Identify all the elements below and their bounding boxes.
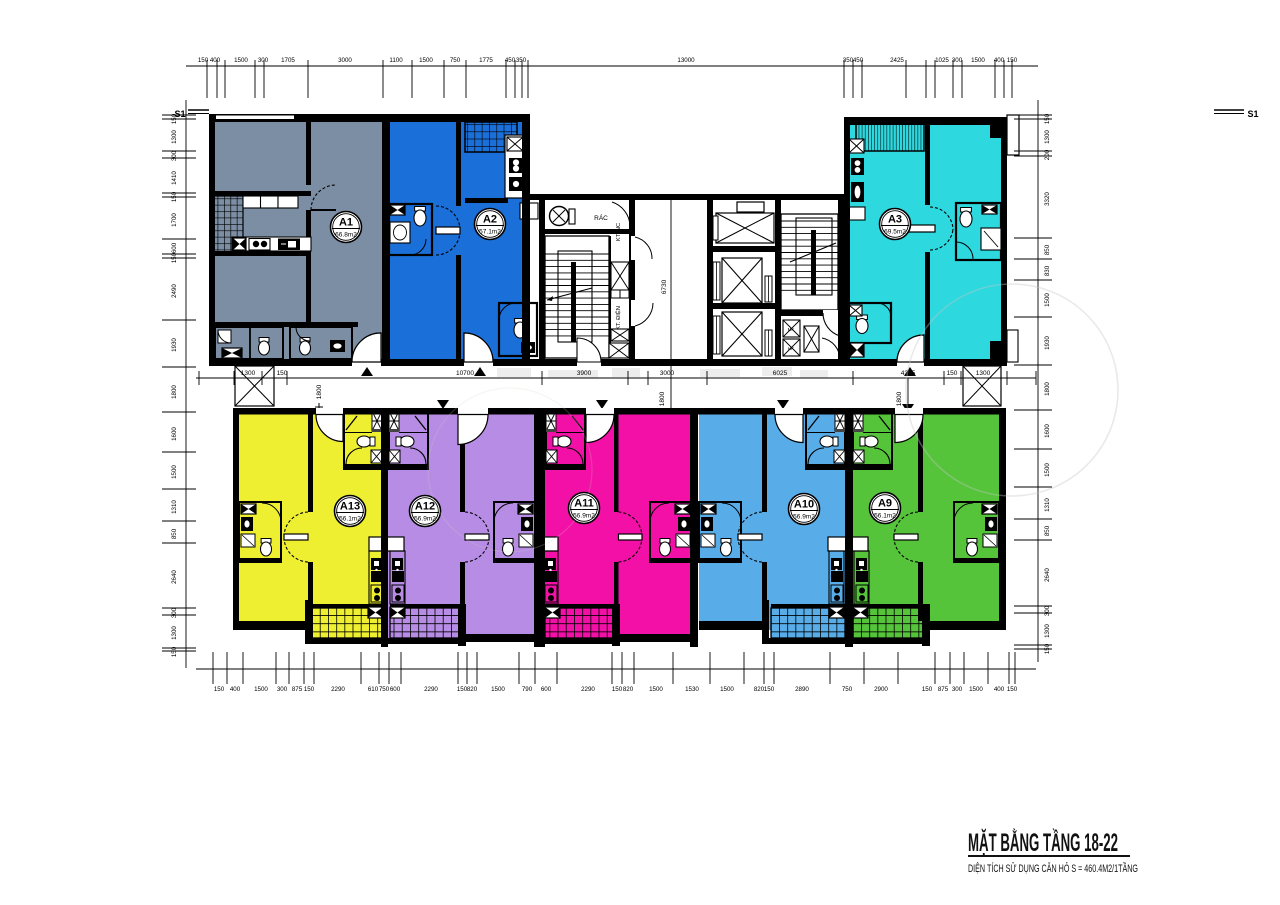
svg-text:750: 750: [450, 57, 461, 64]
svg-text:750: 750: [379, 686, 390, 693]
svg-text:56.1m2: 56.1m2: [339, 516, 361, 523]
svg-text:KT. NC: KT. NC: [616, 223, 622, 241]
svg-text:1800: 1800: [659, 391, 666, 406]
svg-text:300: 300: [952, 686, 963, 693]
svg-text:1800: 1800: [316, 384, 323, 399]
svg-text:6025: 6025: [773, 370, 788, 377]
svg-text:150: 150: [1044, 643, 1051, 654]
svg-text:A12: A12: [415, 501, 435, 513]
svg-text:56.9m2: 56.9m2: [793, 514, 815, 521]
svg-text:1800: 1800: [171, 385, 178, 399]
svg-text:1500: 1500: [971, 57, 985, 64]
svg-text:13000: 13000: [677, 57, 695, 64]
svg-text:66.8m2: 66.8m2: [335, 232, 357, 239]
svg-text:2490: 2490: [171, 284, 178, 298]
svg-text:450: 450: [853, 57, 864, 64]
svg-text:150: 150: [171, 191, 178, 202]
svg-text:1800: 1800: [896, 391, 903, 406]
svg-text:820: 820: [467, 686, 478, 693]
svg-text:2640: 2640: [1044, 568, 1051, 582]
svg-text:150: 150: [922, 686, 933, 693]
svg-text:150: 150: [1007, 686, 1018, 693]
svg-text:1600: 1600: [1044, 424, 1051, 438]
svg-text:300: 300: [171, 150, 178, 161]
svg-text:1300: 1300: [241, 370, 256, 377]
svg-text:A2: A2: [483, 214, 497, 226]
svg-text:A9: A9: [878, 498, 892, 510]
svg-text:400: 400: [210, 57, 221, 64]
svg-text:820: 820: [623, 686, 634, 693]
svg-text:1025: 1025: [935, 57, 949, 64]
svg-text:1930: 1930: [1044, 336, 1051, 350]
svg-text:150: 150: [947, 370, 958, 377]
svg-text:1500: 1500: [491, 686, 505, 693]
svg-text:1500: 1500: [1044, 463, 1051, 477]
svg-text:57.1m2: 57.1m2: [479, 229, 501, 236]
svg-text:3000: 3000: [660, 370, 675, 377]
svg-text:1930: 1930: [171, 338, 178, 352]
svg-text:150: 150: [612, 686, 623, 693]
svg-text:150: 150: [214, 686, 225, 693]
svg-text:DIỆN TÍCH SỬ DỤNG CĂN HỎ S = 4: DIỆN TÍCH SỬ DỤNG CĂN HỎ S = 460.4M2/1TẦ…: [968, 862, 1138, 875]
svg-text:600: 600: [171, 242, 178, 253]
svg-text:A3: A3: [888, 214, 902, 226]
svg-text:2290: 2290: [424, 686, 438, 693]
svg-text:6730: 6730: [661, 279, 668, 294]
svg-text:1700: 1700: [171, 213, 178, 227]
svg-text:830: 830: [1044, 265, 1051, 276]
svg-text:1300: 1300: [1044, 130, 1051, 144]
svg-text:150: 150: [171, 252, 178, 263]
svg-text:56.9m2: 56.9m2: [414, 516, 436, 523]
svg-text:610: 610: [368, 686, 379, 693]
svg-text:300: 300: [277, 686, 288, 693]
svg-text:150: 150: [764, 686, 775, 693]
svg-text:3320: 3320: [1044, 192, 1051, 206]
svg-text:850: 850: [171, 528, 178, 539]
svg-text:2290: 2290: [581, 686, 595, 693]
svg-text:875: 875: [938, 686, 949, 693]
svg-text:S1: S1: [1247, 109, 1258, 119]
svg-text:KT. ĐIỆN: KT. ĐIỆN: [614, 306, 622, 330]
svg-text:56.1m2: 56.1m2: [874, 513, 896, 520]
svg-text:1500: 1500: [171, 465, 178, 479]
svg-text:1800: 1800: [1044, 382, 1051, 396]
svg-text:3000: 3000: [338, 57, 352, 64]
svg-text:150: 150: [277, 370, 288, 377]
svg-text:150: 150: [304, 686, 315, 693]
svg-text:69.5m2: 69.5m2: [884, 229, 906, 236]
svg-text:300: 300: [171, 607, 178, 618]
svg-text:3900: 3900: [577, 370, 592, 377]
svg-text:600: 600: [390, 686, 401, 693]
svg-text:1310: 1310: [171, 500, 178, 514]
svg-text:HK: HK: [788, 346, 794, 351]
svg-text:A1: A1: [339, 217, 353, 229]
svg-text:750: 750: [842, 686, 853, 693]
svg-text:1705: 1705: [281, 57, 295, 64]
svg-text:1300: 1300: [171, 130, 178, 144]
svg-text:875: 875: [292, 686, 303, 693]
svg-text:MẶT BẰNG TẦNG 18-22: MẶT BẰNG TẦNG 18-22: [968, 828, 1118, 857]
svg-text:790: 790: [522, 686, 533, 693]
svg-text:A13: A13: [340, 501, 360, 513]
svg-text:2425: 2425: [890, 57, 904, 64]
svg-text:MK: MK: [788, 327, 795, 332]
svg-text:1300: 1300: [976, 370, 991, 377]
svg-text:2890: 2890: [795, 686, 809, 693]
svg-text:1500: 1500: [419, 57, 433, 64]
svg-text:1500: 1500: [969, 686, 983, 693]
svg-text:300: 300: [952, 57, 963, 64]
svg-text:400: 400: [994, 57, 1005, 64]
svg-text:200: 200: [1044, 149, 1051, 160]
svg-text:350: 350: [516, 57, 527, 64]
svg-text:S1: S1: [174, 109, 185, 119]
svg-text:2900: 2900: [874, 686, 888, 693]
svg-text:1410: 1410: [171, 171, 178, 185]
svg-text:1310: 1310: [1044, 498, 1051, 512]
svg-text:1500: 1500: [720, 686, 734, 693]
svg-text:1100: 1100: [389, 57, 403, 64]
svg-text:300: 300: [1044, 605, 1051, 616]
svg-text:150: 150: [1007, 57, 1018, 64]
svg-text:1775: 1775: [479, 57, 493, 64]
svg-text:400: 400: [994, 686, 1005, 693]
svg-text:2640: 2640: [171, 570, 178, 584]
svg-text:1500: 1500: [234, 57, 248, 64]
svg-text:450: 450: [505, 57, 516, 64]
svg-text:850: 850: [1044, 244, 1051, 255]
svg-text:A11: A11: [574, 498, 594, 510]
svg-text:150: 150: [1044, 113, 1051, 124]
svg-text:10700: 10700: [456, 370, 474, 377]
svg-text:150: 150: [171, 646, 178, 657]
svg-text:1500: 1500: [649, 686, 663, 693]
svg-text:400: 400: [230, 686, 241, 693]
svg-text:1500: 1500: [1044, 293, 1051, 307]
svg-text:1300: 1300: [171, 626, 178, 640]
svg-text:1300: 1300: [1044, 624, 1051, 638]
svg-text:1530: 1530: [685, 686, 699, 693]
svg-text:A10: A10: [794, 499, 814, 511]
svg-text:1600: 1600: [171, 427, 178, 441]
svg-text:2290: 2290: [331, 686, 345, 693]
svg-text:1500: 1500: [254, 686, 268, 693]
svg-text:850: 850: [1044, 525, 1051, 536]
svg-text:600: 600: [541, 686, 552, 693]
svg-text:RÁC: RÁC: [594, 213, 608, 222]
svg-text:300: 300: [258, 57, 269, 64]
svg-text:150: 150: [198, 57, 209, 64]
